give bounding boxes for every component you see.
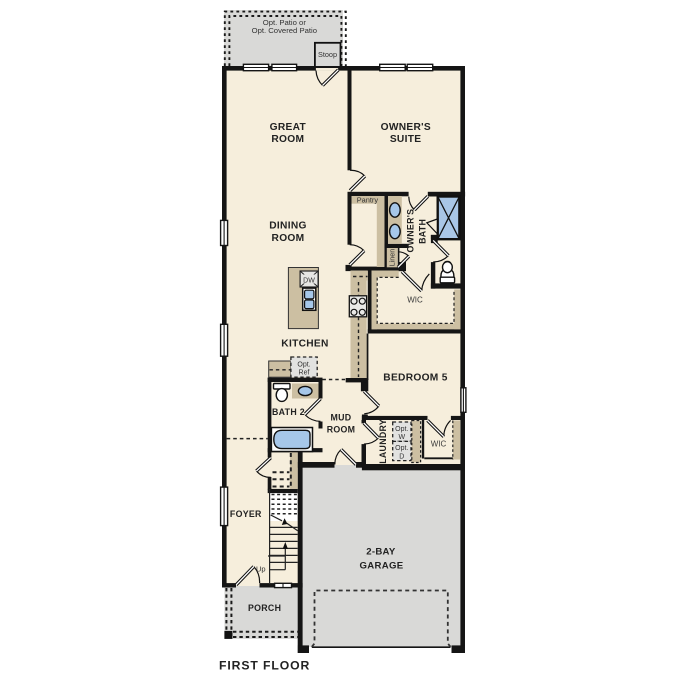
svg-text:BATH 2: BATH 2 (272, 407, 305, 417)
svg-text:PORCH: PORCH (248, 603, 281, 613)
svg-text:Linen: Linen (387, 249, 396, 267)
svg-text:Pantry: Pantry (357, 195, 379, 204)
svg-text:Ref: Ref (299, 370, 310, 377)
svg-text:SUITE: SUITE (390, 134, 422, 145)
svg-text:BATH: BATH (417, 219, 427, 244)
svg-text:Opt.: Opt. (395, 426, 408, 433)
svg-text:DW: DW (303, 278, 315, 285)
svg-text:DINING: DINING (269, 220, 306, 231)
svg-text:ROOM: ROOM (327, 424, 356, 434)
svg-text:FOYER: FOYER (230, 509, 262, 519)
svg-text:GREAT: GREAT (270, 122, 307, 133)
svg-text:KITCHEN: KITCHEN (281, 338, 328, 349)
svg-text:BEDROOM 5: BEDROOM 5 (383, 373, 447, 384)
svg-text:Opt.: Opt. (297, 361, 310, 368)
svg-text:ROOM: ROOM (271, 134, 304, 145)
svg-text:ROOM: ROOM (272, 233, 305, 244)
svg-text:MUD: MUD (331, 412, 352, 422)
svg-text:Stoop: Stoop (318, 50, 337, 59)
svg-text:W: W (398, 434, 405, 441)
svg-text:LAUNDRY: LAUNDRY (378, 419, 388, 464)
svg-text:2-BAY: 2-BAY (366, 547, 396, 558)
svg-text:Opt.: Opt. (395, 445, 408, 452)
svg-text:OWNER'S: OWNER'S (406, 209, 416, 253)
svg-text:D: D (399, 453, 404, 460)
svg-text:GARAGE: GARAGE (360, 560, 404, 571)
svg-text:OWNER'S: OWNER'S (381, 122, 431, 133)
svg-text:FIRST FLOOR: FIRST FLOOR (219, 659, 310, 673)
svg-text:WIC: WIC (431, 440, 447, 449)
svg-text:Opt. Covered Patio: Opt. Covered Patio (252, 26, 317, 35)
svg-text:WIC: WIC (407, 295, 423, 304)
svg-text:Up: Up (256, 565, 266, 574)
